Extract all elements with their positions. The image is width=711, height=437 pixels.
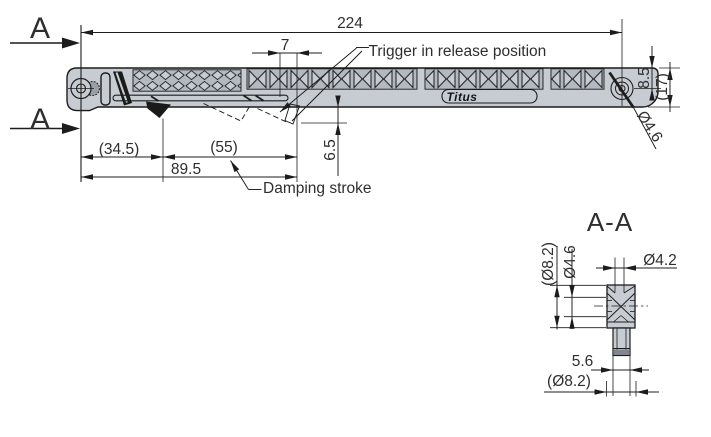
dim-height-total: (17) — [655, 71, 671, 103]
dim-stroke: (55) — [206, 140, 242, 156]
leader-damping-note — [228, 159, 261, 189]
technical-drawing: A A 224 7 Trigger in release position (3… — [0, 0, 711, 437]
dim-sec-bush-ref: (Ø8.2) — [541, 237, 557, 291]
dim-sec-hole-dia: Ø4.2 — [639, 253, 681, 269]
dim-drop: 6.5 — [323, 136, 339, 164]
section-title: A-A — [584, 209, 636, 235]
section-marker-bottom: A — [30, 105, 50, 135]
dim-height-half: 8.5 — [637, 64, 653, 92]
brand-logo: Titus — [447, 91, 478, 103]
lattice-pattern — [133, 69, 604, 91]
dim-total-stroke: 89.5 — [165, 162, 207, 178]
rail-body — [67, 68, 658, 118]
section-aa-block — [594, 285, 648, 328]
dim-front: (34.5) — [95, 142, 143, 158]
dim-sec-flange-ref: (Ø8.2) — [542, 374, 596, 390]
dim-trigger-offset: 7 — [276, 38, 294, 54]
dim-sec-stem: 5.6 — [567, 354, 598, 370]
dim-overall-length: 224 — [330, 16, 370, 32]
damping-note: Damping stroke — [263, 181, 372, 197]
section-aa-stem — [613, 328, 630, 396]
dim-sec-pin-dia: Ø4.6 — [563, 241, 579, 283]
trigger-note: Trigger in release position — [369, 44, 547, 60]
dimension-sec-5-6 — [591, 367, 649, 372]
section-marker-top: A — [30, 14, 50, 44]
